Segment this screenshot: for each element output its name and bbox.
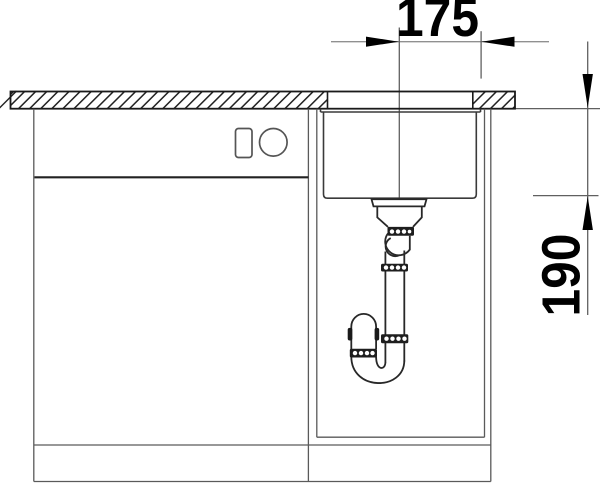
svg-text:190: 190 bbox=[531, 234, 591, 317]
svg-text:175: 175 bbox=[396, 0, 479, 48]
